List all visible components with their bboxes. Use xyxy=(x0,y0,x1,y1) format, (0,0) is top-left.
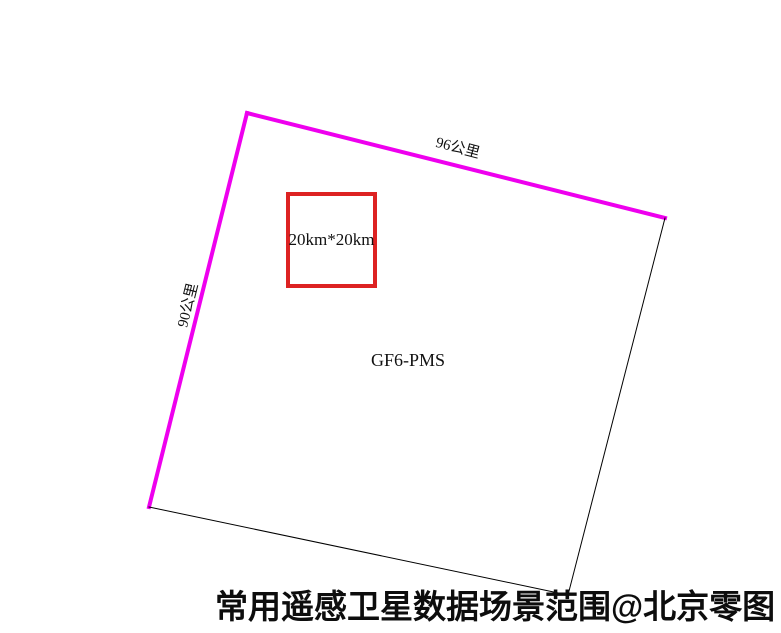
right-edge-line xyxy=(568,218,665,595)
subset-square: 20km*20km xyxy=(286,192,377,288)
scene-footprint-svg xyxy=(0,0,781,633)
scene-diagram: 20km*20km GF6-PMS 96公里 90公里 常用遥感卫星数据场景范围… xyxy=(0,0,781,633)
left-edge-line xyxy=(149,113,247,507)
subset-square-label: 20km*20km xyxy=(289,230,375,250)
scene-sensor-label: GF6-PMS xyxy=(371,350,445,371)
watermark-caption: 常用遥感卫星数据场景范围@北京零图 xyxy=(215,580,775,628)
